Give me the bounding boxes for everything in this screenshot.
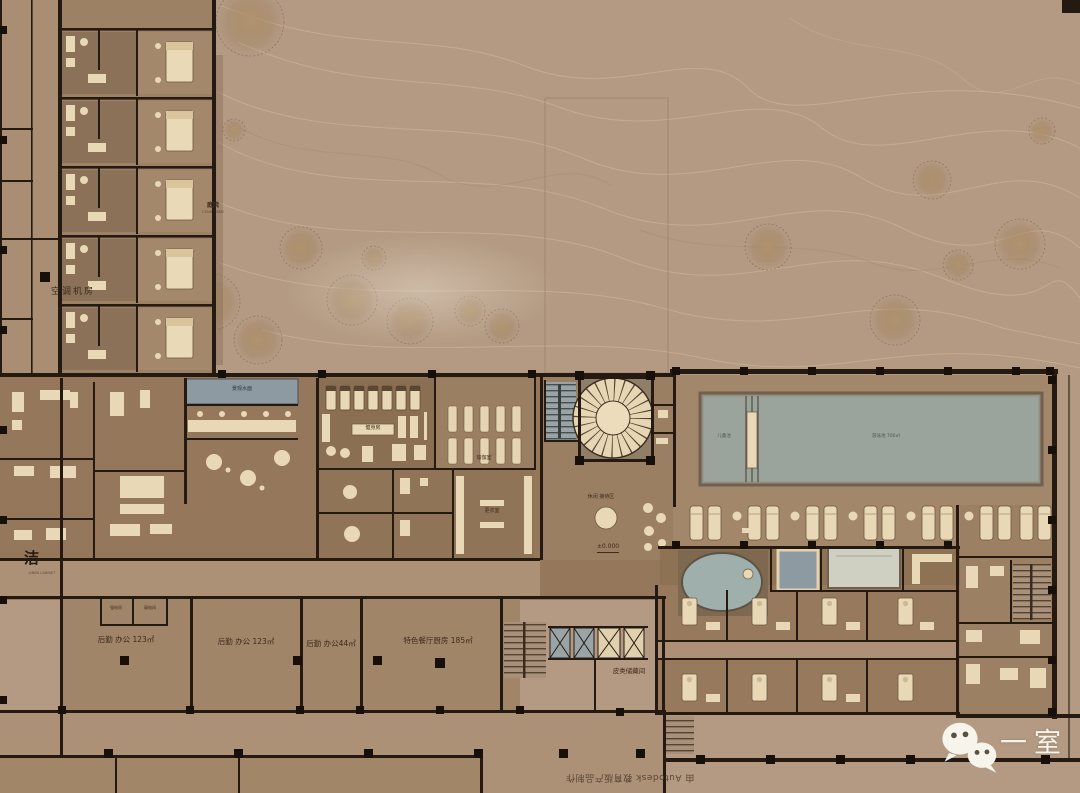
label-linen: 洁: [24, 550, 43, 567]
label-elec-room-2: 弱电间: [144, 606, 156, 610]
site-boundary-line: [545, 98, 668, 373]
label-yoga-room: 瑜伽室: [476, 456, 491, 462]
label-courtyard: 庭院: [207, 203, 219, 210]
label-boh-office-2: 后勤 办公 123㎡: [218, 638, 275, 646]
floor-plan-drawing: [0, 0, 1080, 793]
spiral-staircase: [573, 378, 653, 458]
label-main-pool: 游泳池 700㎡: [872, 435, 900, 440]
guest-room-wing: [58, 28, 223, 373]
label-linen-sub: LINEN CABINET: [29, 572, 56, 576]
label-kitchen: 特色餐厅厨房 185㎡: [403, 637, 472, 645]
label-boh-office-1: 后勤 办公 123㎡: [98, 636, 155, 644]
label-water-feature: 景观水面: [232, 387, 252, 393]
label-lobby: 休闲 接待区: [588, 495, 615, 501]
autodesk-watermark: 由 Autodesk 教育版产品制作: [535, 772, 725, 785]
wechat-logo-icon: [938, 720, 1004, 775]
label-courtyard-sub: COURTYARD: [202, 211, 223, 215]
wechat-account-name: 一室: [1000, 729, 1068, 759]
label-boh-office-3: 后勤 办公44㎡: [306, 640, 355, 648]
floor-plan-canvas: 空调机房 庭院 COURTYARD 景观水面 健身房 瑜伽室 更衣室 休闲 接待…: [0, 0, 1080, 793]
label-locker-room: 更衣室: [484, 509, 499, 515]
terrain-highlight: [280, 235, 560, 345]
label-gym: 健身房: [365, 426, 380, 432]
label-kids-pool: 儿童池: [717, 435, 731, 440]
label-level-marker: ±0.000: [597, 544, 619, 553]
label-elec-room-1: 强电间: [110, 606, 122, 610]
label-hvac-room: 空调机房: [51, 288, 95, 298]
label-leather-storage: 皮类储藏间: [613, 668, 646, 675]
